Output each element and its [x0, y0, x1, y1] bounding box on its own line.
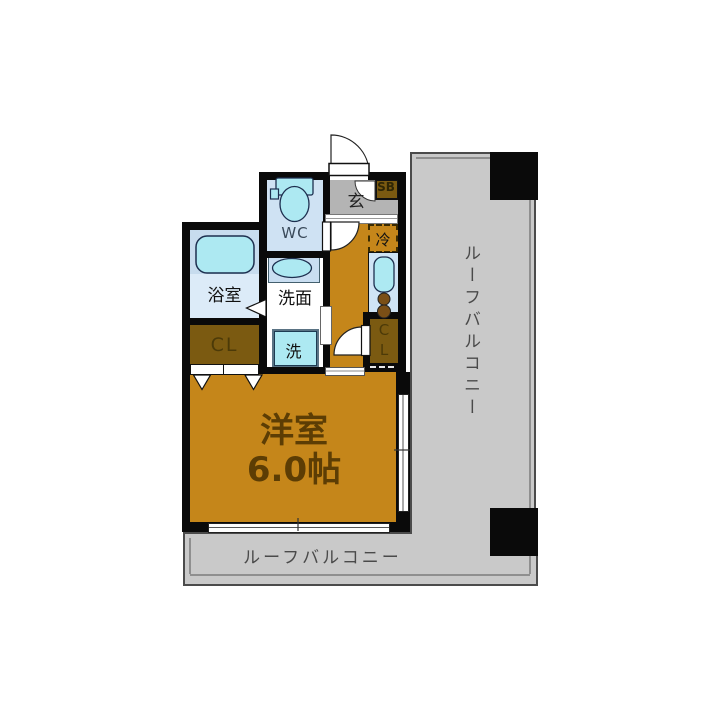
wall	[190, 318, 259, 325]
closet-left-label: CL	[190, 334, 259, 356]
wall	[259, 172, 267, 374]
washer-label: 洗	[272, 338, 315, 362]
entrance-step	[325, 214, 398, 224]
structural-pillar	[490, 508, 538, 556]
structural-pillar	[490, 152, 538, 200]
wall	[267, 251, 323, 258]
closet-folding-door	[190, 364, 259, 375]
washbasin-counter	[268, 255, 320, 283]
wall	[259, 172, 330, 180]
washroom-doorway	[320, 306, 332, 345]
washroom-label: 洗面	[267, 284, 323, 309]
bathroom-label: 浴室	[190, 281, 259, 306]
roof-balcony-bottom-label: ルーフバルコニー	[230, 543, 415, 568]
wall	[182, 222, 267, 230]
shoebox-label: SB	[375, 180, 397, 194]
floor-plan: 玄 SB WC 浴室 洗面 洗 冷 CL C L 洋室 6.0帖 ルーフバルコニ…	[0, 0, 719, 719]
main-room-size: 6.0帖	[190, 451, 398, 490]
main-room-name: 洋室	[190, 412, 398, 451]
wall	[182, 222, 190, 532]
balcony-edge-line	[410, 152, 412, 532]
kitchen-unit	[368, 252, 399, 314]
wc-label: WC	[267, 224, 323, 242]
window-east	[398, 394, 409, 512]
bathroom-tub-area	[190, 230, 259, 274]
roof-balcony-right-label: ルーフバルコニー	[453, 244, 483, 454]
entrance-door-leaf	[329, 164, 369, 176]
refrigerator-label: 冷	[368, 229, 398, 250]
wall	[398, 172, 406, 372]
entrance-door-swing	[331, 135, 369, 173]
closet-right-label-line2: L	[370, 340, 398, 360]
closet-right-opening	[370, 366, 394, 368]
balcony-inner-line	[190, 574, 530, 576]
closet-right-label: C L	[370, 320, 398, 360]
hall-threshold	[325, 367, 365, 376]
main-room-label: 洋室 6.0帖	[190, 412, 398, 490]
wall	[259, 367, 330, 374]
balcony-inner-line	[189, 538, 191, 574]
window-south	[208, 523, 390, 533]
closet-right-label-line1: C	[370, 320, 398, 340]
